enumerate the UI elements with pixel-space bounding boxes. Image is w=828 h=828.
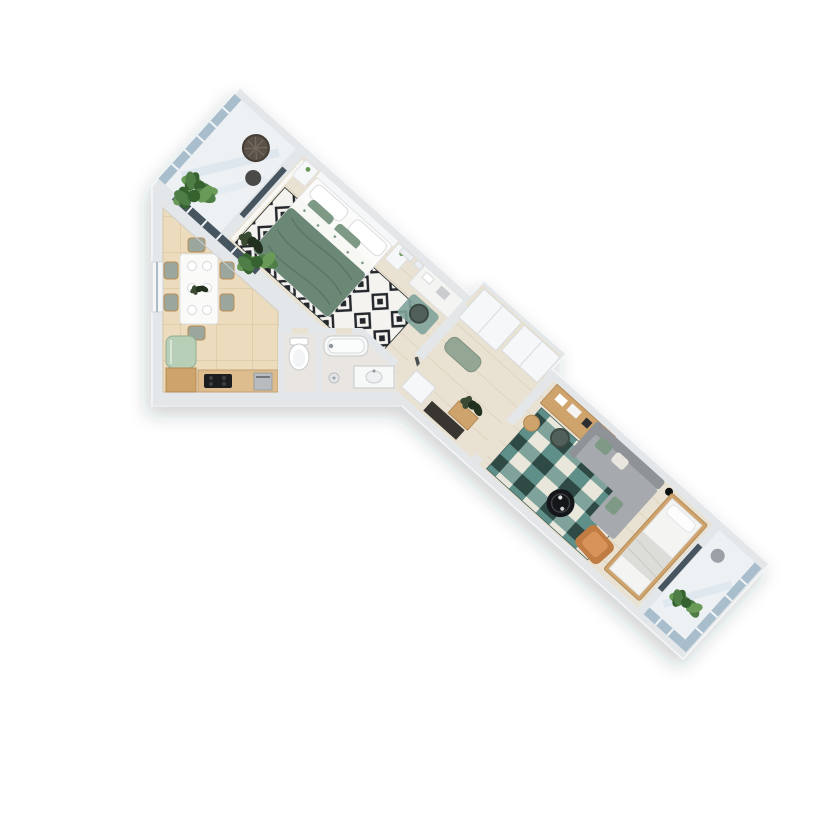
vanity-sink [354, 366, 394, 388]
floorplan-render [0, 0, 828, 828]
bathtub [324, 336, 368, 356]
bathroom-lamp [329, 373, 339, 383]
wc-door-opening [292, 328, 308, 334]
dining-chair [164, 262, 178, 279]
wc-bath-wall [316, 328, 322, 394]
floorplan-canvas [0, 0, 828, 828]
wc-toilet [289, 338, 309, 370]
dining-chair [164, 294, 178, 311]
apartment [152, 76, 778, 659]
wc-left-wall [278, 328, 284, 394]
cooktop [204, 374, 232, 388]
dining-chair [220, 294, 234, 311]
dining-chair [220, 262, 234, 279]
kitchen-cabinet [166, 368, 196, 392]
tub-faucet [329, 344, 333, 348]
bath-door-opening [336, 328, 352, 334]
oven [254, 373, 272, 390]
dining-chair [188, 238, 205, 252]
